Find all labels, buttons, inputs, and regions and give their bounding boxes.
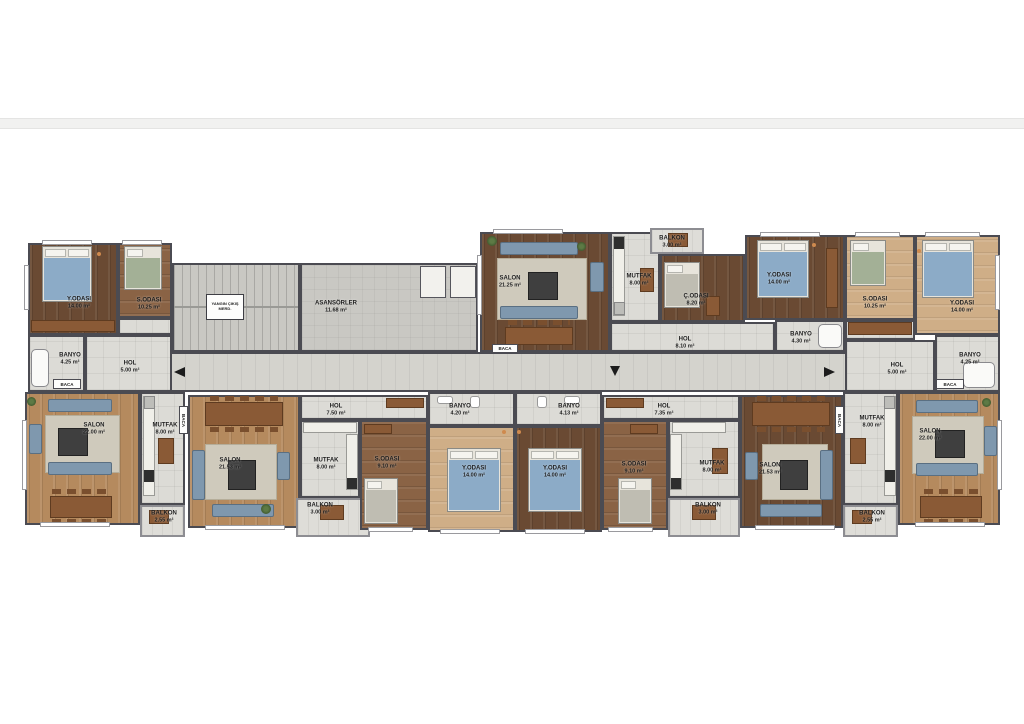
room-name: HOL [655, 404, 674, 411]
elevator-car [450, 266, 476, 298]
chair-row [508, 320, 570, 325]
dining-table [505, 327, 573, 345]
plant [982, 398, 991, 407]
room-hall-c: HOL 5.00 m² [845, 340, 935, 392]
room-name: BANYO [449, 404, 471, 411]
room-name: BALKON [695, 503, 721, 510]
room-area: 21.25 m² [499, 282, 521, 288]
room-area: 22.00 m² [83, 429, 105, 435]
room-label: S.ODASI 9.10 m² [622, 462, 647, 475]
room-label: BALKON 2.55 m² [859, 511, 885, 524]
room-area: 4.25 m² [959, 359, 981, 365]
sofa [192, 450, 205, 500]
sofa [916, 463, 978, 476]
window [755, 525, 835, 530]
dining-table [205, 402, 283, 426]
room-label: S.ODASI 10.25 m² [863, 297, 888, 310]
fire-exit-stair-box: YANGIN ÇIKIŞ MERD. [206, 294, 244, 320]
room-label: Y.ODASI 14.00 m² [950, 301, 974, 314]
shoe-cabinet [848, 322, 912, 335]
bed-blanket [852, 252, 884, 284]
room-label: Y.ODASI 14.00 m² [543, 466, 567, 479]
fire-exit-label-line2: MERD. [219, 307, 232, 312]
corridor-arrow-down-icon [610, 366, 620, 376]
fridge [614, 302, 625, 315]
bed [364, 478, 398, 524]
room-label: HOL 5.00 m² [121, 361, 140, 374]
bathtub [963, 362, 995, 388]
armchair [984, 426, 997, 456]
window [915, 522, 985, 527]
room-bathroom-e: BANYO 4.13 m² [515, 392, 602, 426]
room-area: 4.20 m² [449, 410, 471, 416]
stove [614, 237, 624, 249]
room-label: SALON 22.00 m² [83, 423, 105, 436]
room-label: Y.ODASI 14.00 m² [767, 273, 791, 286]
window [477, 255, 482, 315]
window [22, 420, 27, 490]
room-name: BALKON [859, 511, 885, 518]
room-label: MUTFAK 8.00 m² [627, 274, 652, 287]
room-name: MUTFAK [860, 416, 885, 423]
room-label: HOL 7.50 m² [327, 404, 346, 417]
room-area: 8.00 m² [700, 467, 725, 473]
chimney-box: BACA [936, 379, 964, 389]
room-area: 14.00 m² [67, 303, 91, 309]
room-label: SALON 21.53 m² [219, 458, 241, 471]
room-label: MUTFAK 8.00 m² [860, 416, 885, 429]
room-name: SALON [919, 429, 941, 436]
wall-lamp-dot [97, 252, 101, 256]
room-area: 21.53 m² [219, 464, 241, 470]
chair-row [210, 427, 278, 432]
room-area: 14.00 m² [543, 472, 567, 478]
room-name: Y.ODASI [950, 301, 974, 308]
room-name: MUTFAK [627, 274, 652, 281]
bed-pillow [68, 249, 89, 257]
room-name: Y.ODASI [67, 297, 91, 304]
coffee-table [528, 272, 558, 300]
chimney-label: BACA [181, 414, 186, 427]
desk [630, 424, 658, 434]
room-name: HOL [676, 337, 695, 344]
room-name: BALKON [659, 236, 685, 243]
room-hall-a: HOL 5.00 m² [85, 335, 172, 392]
sofa [48, 462, 112, 475]
window [122, 240, 162, 245]
chimney-box: BACA [179, 406, 188, 434]
wall-lamp-dot [517, 430, 521, 434]
room-label: BANYO 4.13 m² [558, 404, 580, 417]
plant [27, 397, 36, 406]
window [24, 265, 29, 310]
kitchen-table [158, 438, 174, 464]
dining-table [752, 402, 830, 426]
chimney-label: BACA [837, 414, 842, 427]
room-label: SALON 22.00 m² [919, 429, 941, 442]
bed-pillow [667, 265, 683, 273]
room-area: 10.25 m² [863, 303, 888, 309]
room-label: MUTFAK 8.00 m² [153, 423, 178, 436]
room-area: 7.35 m² [655, 410, 674, 416]
room-name: Y.ODASI [543, 466, 567, 473]
floor-plan-screenshot: ASANSÖRLER 11.68 m² Y.ODASI 14.00 m² S.O… [0, 0, 1024, 724]
wardrobe [826, 248, 838, 308]
chimney-label: BACA [944, 382, 957, 387]
dining-table [920, 496, 982, 518]
coffee-table [780, 460, 808, 490]
bathtub [31, 349, 49, 387]
kitchen-table [850, 438, 866, 464]
room-name: S.ODASI [863, 297, 888, 304]
room-name: SALON [83, 423, 105, 430]
chimney-box: BACA [53, 379, 81, 389]
bed [528, 448, 582, 512]
room-name: SALON [759, 463, 781, 470]
bed-pillow [853, 243, 869, 251]
room-area: 14.00 m² [950, 307, 974, 313]
room-area: 4.25 m² [59, 359, 81, 365]
room-label: MUTFAK 8.00 m² [700, 461, 725, 474]
bathtub [818, 324, 842, 348]
room-area: 2.55 m² [151, 517, 177, 523]
room-name: MUTFAK [314, 458, 339, 465]
bed [124, 246, 162, 290]
room-area: 4.13 m² [558, 410, 580, 416]
bed-pillow [621, 481, 636, 489]
bed [618, 478, 652, 524]
room-area: 5.00 m² [121, 367, 140, 373]
room-area: 22.00 m² [919, 435, 941, 441]
room-label: ASANSÖRLER 11.68 m² [315, 301, 357, 314]
room-area: 3.00 m² [695, 509, 721, 515]
room-label: BALKON 3.00 m² [307, 503, 333, 516]
room-area: 11.68 m² [315, 307, 357, 313]
wall-lamp-dot [812, 243, 816, 247]
bed-blanket [126, 258, 160, 288]
stove [885, 470, 895, 482]
room-label: BALKON 3.00 m² [695, 503, 721, 516]
window [205, 525, 285, 530]
room-label: SALON 21.25 m² [499, 276, 521, 289]
room-name: BANYO [959, 353, 981, 360]
room-label: BANYO 4.25 m² [59, 353, 81, 366]
sofa [820, 450, 833, 500]
room-area: 10.25 m² [137, 304, 162, 310]
stove [671, 478, 681, 489]
bed [850, 240, 886, 286]
room-area: 8.00 m² [153, 429, 178, 435]
bed-pillow [556, 451, 579, 459]
room-label: HOL 5.00 m² [888, 363, 907, 376]
armchair [590, 262, 604, 292]
room-area: 14.00 m² [767, 279, 791, 285]
bed-pillow [760, 243, 782, 251]
corridor-arrow-left-icon [174, 367, 185, 377]
plant [487, 236, 497, 246]
room-name: S.ODASI [375, 457, 400, 464]
fridge [144, 396, 155, 409]
chair-row [757, 396, 825, 401]
sofa [916, 400, 978, 413]
room-label: SALON 21.53 m² [759, 463, 781, 476]
bed-pillow [784, 243, 806, 251]
plant [261, 504, 271, 514]
room-hall-b: HOL 8.10 m² [610, 322, 775, 352]
bed-pillow [127, 249, 143, 257]
chair-row [210, 396, 278, 401]
room-name: S.ODASI [622, 462, 647, 469]
sofa [500, 306, 578, 319]
bed [757, 240, 809, 298]
room-name: BANYO [558, 404, 580, 411]
window [855, 232, 900, 237]
window [995, 255, 1000, 310]
stove [347, 478, 357, 489]
bed-pillow [475, 451, 498, 459]
sofa [500, 242, 578, 255]
room-area: 8.20 m² [683, 300, 708, 306]
bed-pillow [450, 451, 473, 459]
room-label: HOL 7.35 m² [655, 404, 674, 417]
bed-pillow [367, 481, 382, 489]
chair-row [757, 427, 825, 432]
bed-blanket [620, 490, 650, 522]
room-name: Y.ODASI [767, 273, 791, 280]
chair-row [52, 489, 110, 494]
chimney-box: BACA [492, 344, 518, 353]
room-label: BALKON 2.55 m² [151, 511, 177, 524]
room-label: BANYO 4.30 m² [790, 332, 812, 345]
corridor-arrow-right-icon [824, 367, 835, 377]
chimney-box: BACA [835, 406, 844, 434]
room-area: 3.00 m² [659, 242, 685, 248]
bed-pillow [949, 243, 971, 251]
room-name: HOL [121, 361, 140, 368]
window [493, 229, 563, 234]
window [997, 420, 1002, 490]
armchair [745, 452, 758, 480]
toilet [470, 396, 480, 408]
room-name: BANYO [790, 332, 812, 339]
armchair [29, 424, 42, 454]
room-name: ASANSÖRLER [315, 301, 357, 308]
toilet [537, 396, 547, 408]
room-label: BALKON 3.00 m² [659, 236, 685, 249]
room-corridor [85, 352, 935, 392]
room-balcony-b: BALKON 3.00 m² [650, 228, 704, 254]
room-area: 9.10 m² [622, 468, 647, 474]
window [925, 232, 980, 237]
room-name: MUTFAK [700, 461, 725, 468]
window [608, 527, 653, 532]
chair-row [924, 489, 980, 494]
room-area: 2.55 m² [859, 517, 885, 523]
room-label: S.ODASI 10.25 m² [137, 298, 162, 311]
kitchen-counter [672, 422, 726, 433]
room-name: S.ODASI [137, 298, 162, 305]
room-name: SALON [499, 276, 521, 283]
window [760, 232, 820, 237]
wardrobe [31, 320, 115, 332]
room-area: 7.50 m² [327, 410, 346, 416]
room-name: SALON [219, 458, 241, 465]
plant [577, 242, 586, 251]
room-name: BANYO [59, 353, 81, 360]
room-label: BANYO 4.20 m² [449, 404, 471, 417]
room-area: 8.10 m² [676, 343, 695, 349]
wall-lamp-dot [502, 430, 506, 434]
room-label: MUTFAK 8.00 m² [314, 458, 339, 471]
room-name: Y.ODASI [462, 466, 486, 473]
room-label: Ç.ODASI 8.20 m² [683, 294, 708, 307]
floor-plan: ASANSÖRLER 11.68 m² Y.ODASI 14.00 m² S.O… [0, 0, 1024, 724]
bed-pillow [925, 243, 947, 251]
room-area: 4.30 m² [790, 338, 812, 344]
room-area: 8.00 m² [627, 280, 652, 286]
room-label: BANYO 4.25 m² [959, 353, 981, 366]
window [42, 240, 92, 245]
dining-table [50, 496, 112, 518]
bed [447, 448, 501, 512]
room-name: BALKON [151, 511, 177, 518]
bed-pillow [531, 451, 554, 459]
fridge [884, 396, 895, 409]
elevator-car [420, 266, 446, 298]
chimney-label: BACA [61, 382, 74, 387]
window [368, 527, 413, 532]
room-label: Y.ODASI 14.00 m² [67, 297, 91, 310]
room-name: HOL [888, 363, 907, 370]
kitchen-counter [303, 422, 357, 433]
window [525, 529, 585, 534]
room-area: 21.53 m² [759, 469, 781, 475]
bed-blanket [366, 490, 396, 522]
room-label: Y.ODASI 14.00 m² [462, 466, 486, 479]
room-area: 8.00 m² [314, 464, 339, 470]
room-balcony-a: BALKON 2.55 m² [140, 505, 185, 537]
stove [144, 470, 154, 482]
hall-cabinet [606, 398, 644, 408]
room-area: 3.00 m² [307, 509, 333, 515]
chimney-label: BACA [499, 346, 512, 351]
room-name: HOL [327, 404, 346, 411]
room-name: MUTFAK [153, 423, 178, 430]
bed-blanket [924, 252, 972, 296]
bed [42, 246, 92, 302]
armchair [277, 452, 290, 480]
room-closet-a [118, 318, 172, 335]
room-label: S.ODASI 9.10 m² [375, 457, 400, 470]
window [440, 529, 500, 534]
room-name: Ç.ODASI [683, 294, 708, 301]
room-label: HOL 8.10 m² [676, 337, 695, 350]
bed-blanket [44, 258, 90, 300]
room-area: 14.00 m² [462, 472, 486, 478]
bed-pillow [45, 249, 66, 257]
room-area: 8.00 m² [860, 422, 885, 428]
sofa [760, 504, 822, 517]
hall-cabinet [386, 398, 424, 408]
window [40, 522, 110, 527]
wall-lamp-dot [917, 249, 921, 253]
bed [922, 240, 974, 298]
room-name: BALKON [307, 503, 333, 510]
sofa [48, 399, 112, 412]
desk [364, 424, 392, 434]
room-area: 9.10 m² [375, 463, 400, 469]
room-area: 5.00 m² [888, 369, 907, 375]
